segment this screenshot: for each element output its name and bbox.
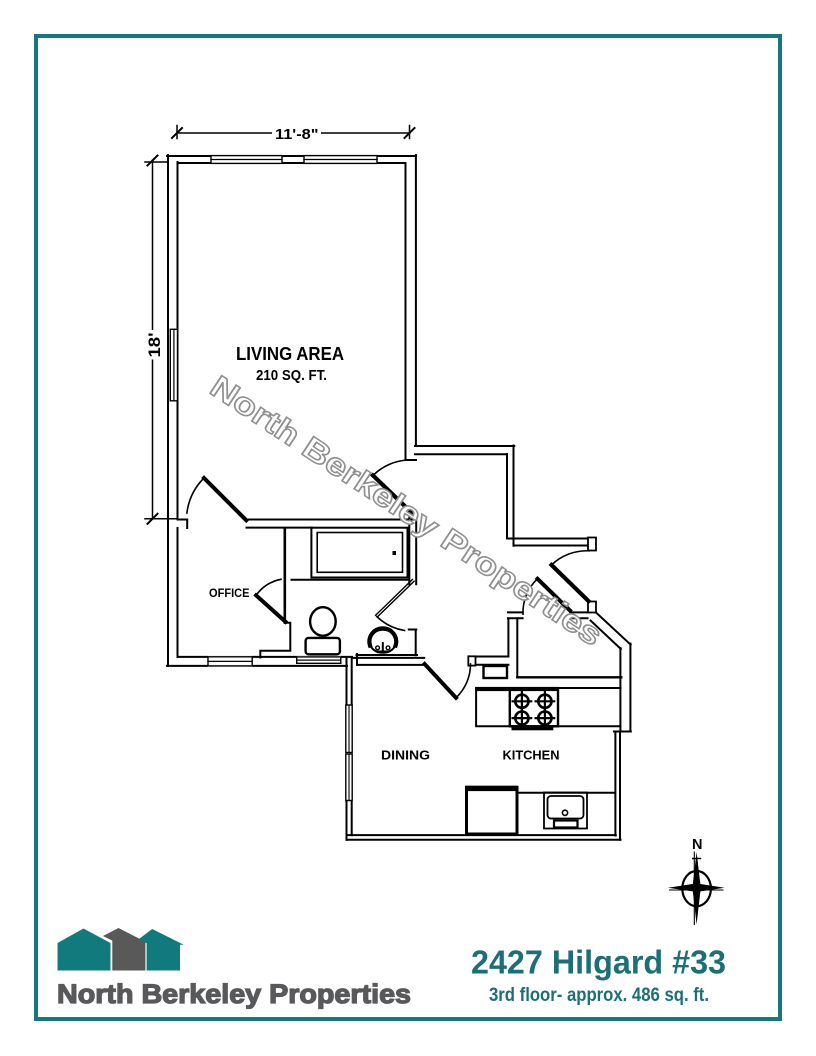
svg-text:DINING: DINING <box>381 749 430 763</box>
svg-text:210 SQ. FT.: 210 SQ. FT. <box>256 367 327 384</box>
svg-text:11'-8": 11'-8" <box>275 126 319 143</box>
svg-text:OFFICE: OFFICE <box>209 586 250 600</box>
svg-text:KITCHEN: KITCHEN <box>503 749 560 763</box>
svg-text:N: N <box>692 837 702 853</box>
svg-text:18': 18' <box>146 332 164 357</box>
svg-text:LIVING AREA: LIVING AREA <box>236 344 344 364</box>
svg-text:2427 Hilgard #33: 2427 Hilgard #33 <box>471 945 726 982</box>
svg-text:North Berkeley Properties: North Berkeley Properties <box>57 979 411 1009</box>
svg-text:3rd floor- approx. 486 sq. ft.: 3rd floor- approx. 486 sq. ft. <box>489 985 709 1006</box>
